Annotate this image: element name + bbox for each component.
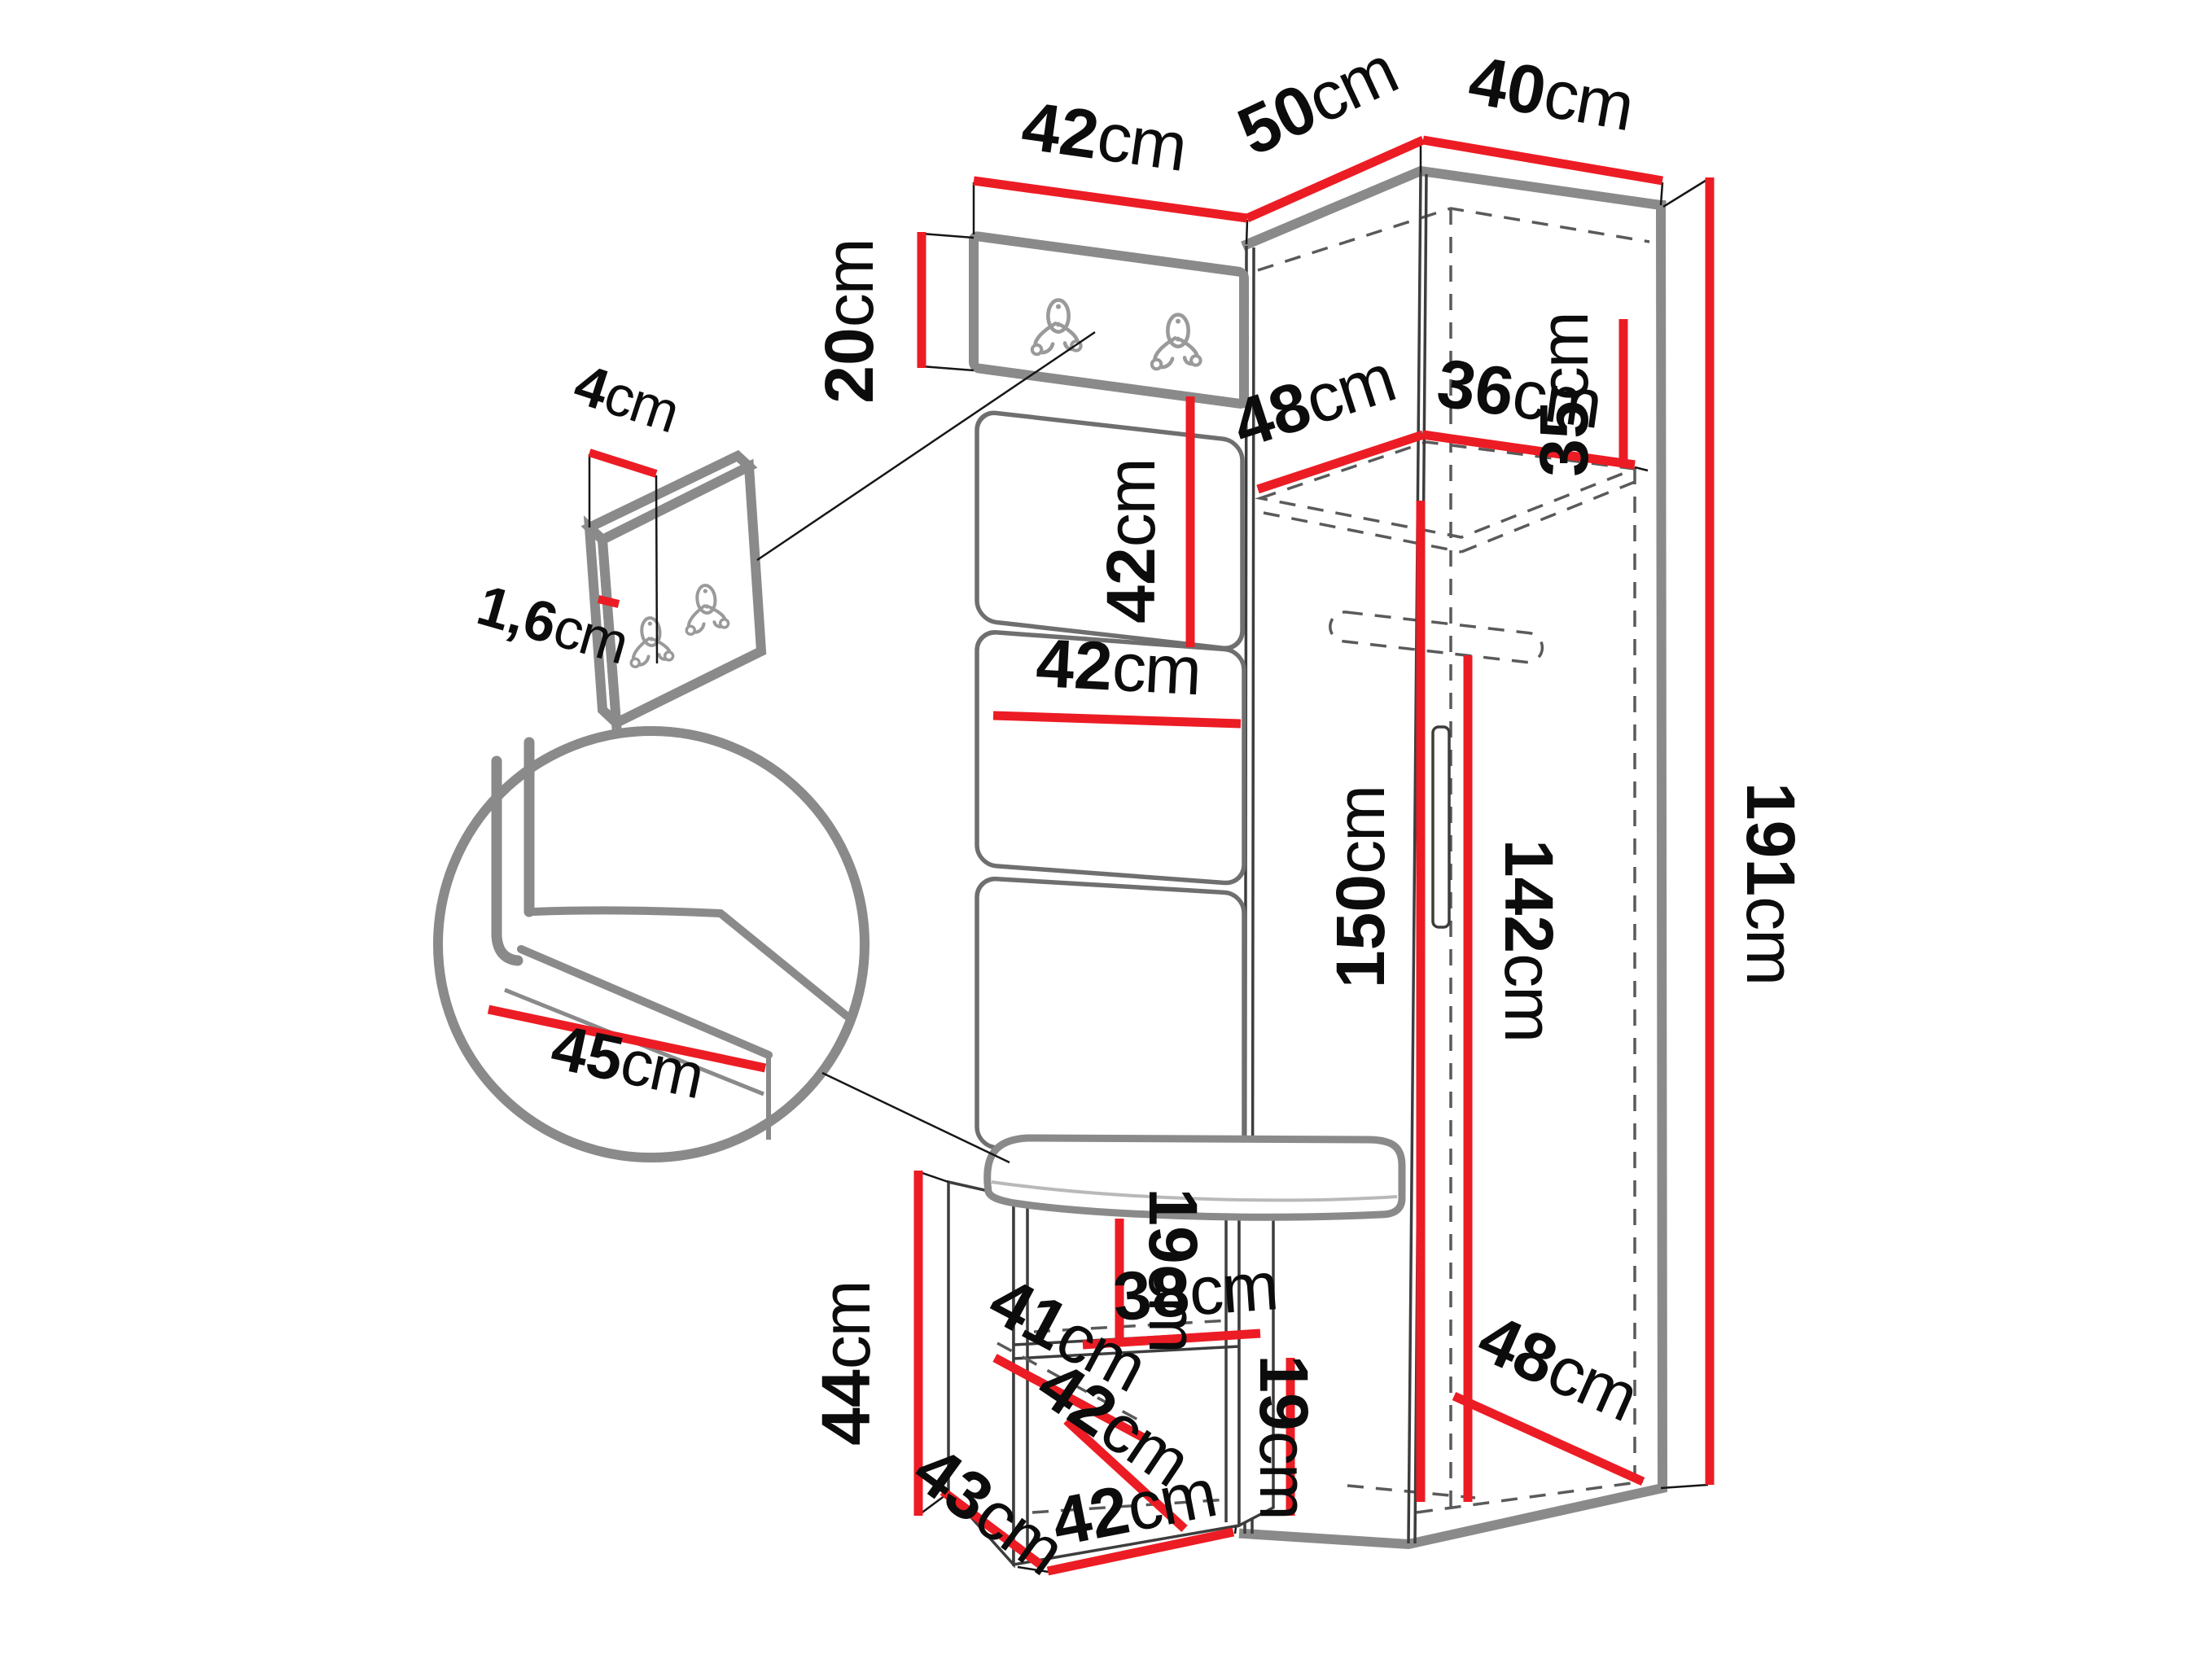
- dim-label-bench-shelf-width: 38cm: [1110, 1247, 1279, 1335]
- dim-line-top-width-left: [974, 181, 1247, 218]
- dim-label-total-height: 191cm: [1732, 782, 1809, 984]
- hook-board: [974, 236, 1244, 405]
- dim-label-hook-panel-height: 20cm: [811, 239, 887, 403]
- dim-label-panel-height-upper: 42cm: [1093, 459, 1169, 623]
- dim-label-top-compartment-height: 35cm: [1526, 313, 1602, 476]
- dim-label-interior-height: 150cm: [1322, 786, 1399, 988]
- furniture-dimension-diagram: 42cm 50cm 40cm 20cm 42cm 48cm 36cm 35cm …: [0, 0, 2212, 1659]
- padded-panel-lower: [977, 878, 1244, 1162]
- door-handle: [1433, 727, 1449, 927]
- dim-label-rod-height: 142cm: [1491, 839, 1567, 1041]
- hook-board-detail: [589, 456, 761, 723]
- dim-label-top-width-mid: 50cm: [1227, 32, 1408, 170]
- dim-label-bench-height: 44cm: [808, 1281, 884, 1445]
- dim-label-top-width-left: 42cm: [1018, 87, 1191, 186]
- dim-label-top-width-right: 40cm: [1464, 42, 1639, 146]
- dim-line-detail-width: [589, 453, 656, 474]
- dim-label-panel-width: 42cm: [1034, 624, 1202, 709]
- dim-line-detail-thickness: [598, 599, 619, 604]
- dim-label-cubby-height-lower: 19cm: [1246, 1355, 1322, 1518]
- dim-label-detail-width: 4cm: [567, 352, 686, 444]
